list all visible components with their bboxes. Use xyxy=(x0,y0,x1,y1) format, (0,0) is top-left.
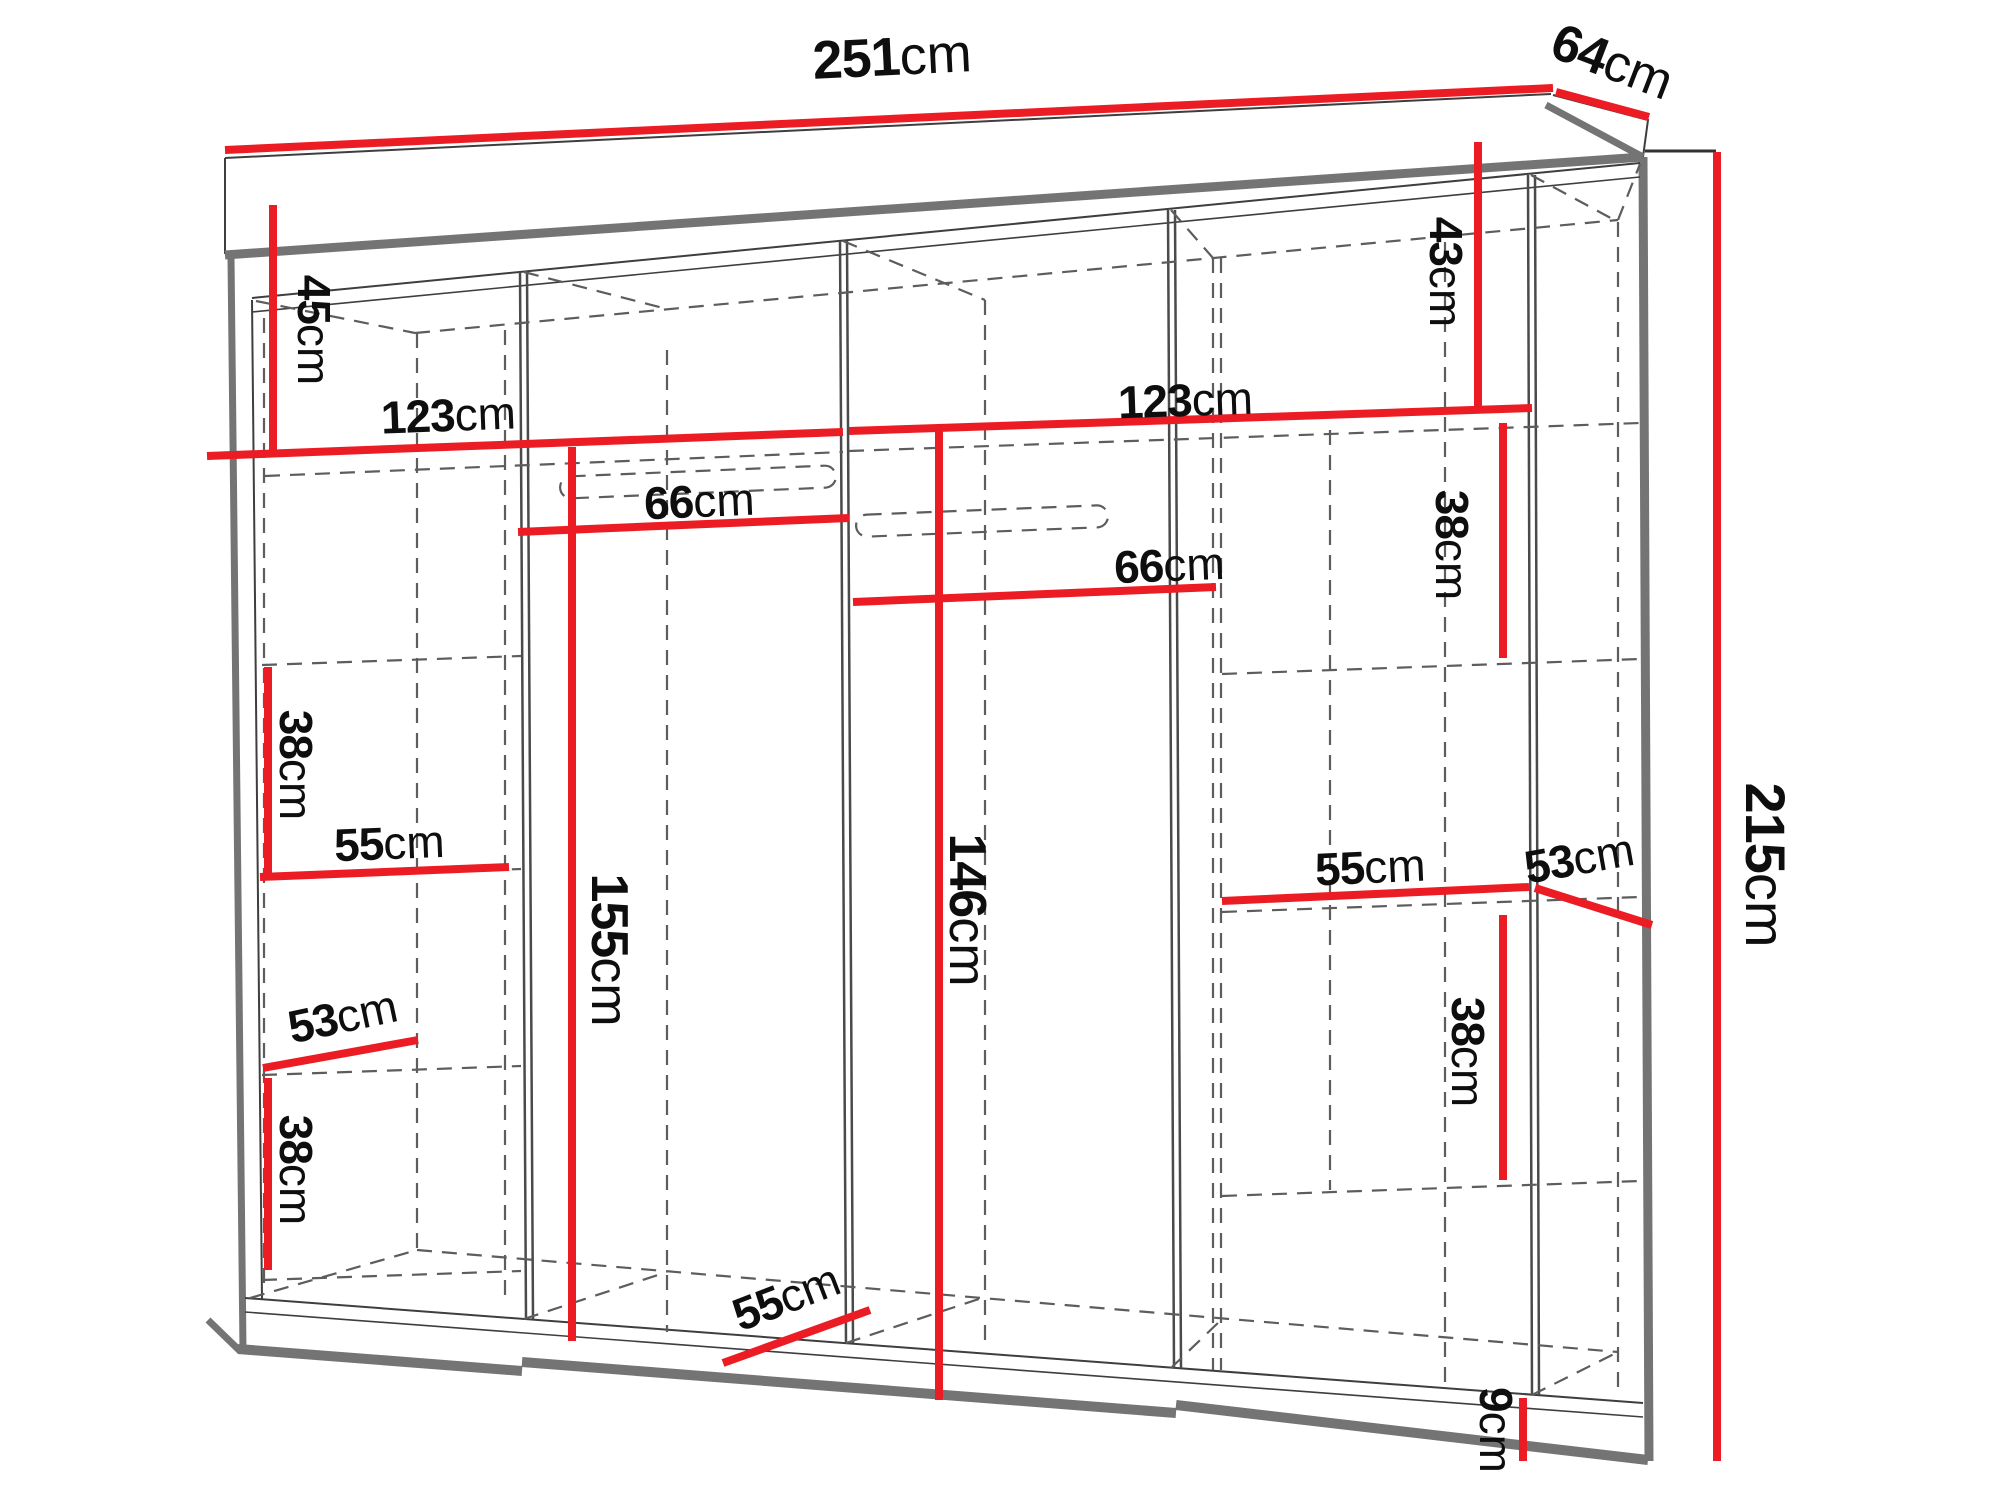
dimension-label-right-shelf-38-upper: 38cm xyxy=(1426,490,1478,601)
shelf-a4 xyxy=(262,1271,521,1280)
dimension-overall-width: 251cm xyxy=(225,23,1553,150)
floor-diag-left xyxy=(250,1250,417,1298)
top-diag-right xyxy=(1618,164,1640,220)
dimension-top-left-45: 45cm xyxy=(273,205,340,453)
floor-diag-p1 xyxy=(524,1272,667,1319)
dimension-label-right-rail-66: 66cm xyxy=(1113,537,1225,593)
dimension-right-depth-53: 53cm xyxy=(1520,823,1652,925)
dimension-line-overall-width xyxy=(225,88,1553,150)
dimension-right-width-123: 123cm xyxy=(849,372,1532,431)
right-side-panel-edge xyxy=(1643,157,1649,1461)
clothes-rail-right xyxy=(856,505,1109,537)
shelf-a3 xyxy=(262,1066,521,1075)
dimension-label-left-shelf-55: 55cm xyxy=(333,815,445,871)
dimension-label-right-shelf-38-lower: 38cm xyxy=(1442,997,1494,1108)
left-side-panel-edge xyxy=(231,258,243,1350)
dimension-label-plinth-9: 9cm xyxy=(1470,1387,1522,1473)
floor-diag-p4 xyxy=(1532,1352,1618,1395)
dimension-right-shelf-38-lower: 38cm xyxy=(1442,915,1503,1180)
dimension-line-right-depth-53 xyxy=(1535,888,1652,925)
dimension-label-top-left-45: 45cm xyxy=(288,275,340,386)
shelf-a1 xyxy=(262,656,521,665)
dimension-left-shelf-38-lower: 38cm xyxy=(268,1078,322,1270)
dimension-overall-depth: 64cm xyxy=(1543,13,1681,117)
dimension-mid-height-155: 155cm xyxy=(572,447,638,1341)
crown-top-edge xyxy=(225,94,1551,158)
hidden-depth-lines xyxy=(250,164,1640,1395)
dimension-left-depth-53: 53cm xyxy=(263,979,418,1068)
dimension-label-right-width-123: 123cm xyxy=(1117,372,1254,429)
dimension-left-shelf-38-upper: 38cm xyxy=(268,667,322,875)
shelf-c3 xyxy=(1222,1181,1640,1196)
dimension-label-mid-height-155: 155cm xyxy=(580,873,638,1026)
dimension-label-overall-height: 215cm xyxy=(1734,782,1797,947)
dimension-line-left-depth-53 xyxy=(263,1040,418,1068)
dimension-right-shelf-38-upper: 38cm xyxy=(1426,423,1503,658)
dimension-label-left-shelf-38-upper: 38cm xyxy=(270,710,322,821)
partition-2-center xyxy=(840,241,853,1343)
dimension-plinth-9: 9cm xyxy=(1470,1387,1523,1473)
dimension-label-right-shelf-55: 55cm xyxy=(1314,839,1427,896)
dimension-right-rail-66: 66cm xyxy=(853,537,1226,602)
dimension-label-left-shelf-38-lower: 38cm xyxy=(270,1115,322,1226)
dimension-label-overall-width: 251cm xyxy=(811,23,973,91)
dimension-label-mid-height-146: 146cm xyxy=(938,833,996,986)
interior-floor-line xyxy=(245,1298,1643,1403)
dimension-label-top-right-43: 43cm xyxy=(1420,217,1472,328)
dimension-right-shelf-55: 55cm xyxy=(1222,839,1529,901)
dimension-line-left-width-123 xyxy=(207,432,843,456)
floor-diag-p2 xyxy=(846,1297,985,1343)
shelf-c1 xyxy=(1222,659,1640,674)
dimension-mid-height-146: 146cm xyxy=(938,427,996,1400)
dimension-label-left-width-123: 123cm xyxy=(380,386,517,443)
partition-4 xyxy=(1528,175,1539,1395)
dimension-annotations: 251cm64cm215cm45cm43cm123cm123cm66cm66cm… xyxy=(207,13,1797,1473)
dimension-left-shelf-55: 55cm xyxy=(260,815,509,877)
floor-back-edge xyxy=(417,1250,1618,1352)
dimension-overall-height: 215cm xyxy=(1645,151,1797,1461)
top-diag-p3 xyxy=(1171,210,1213,258)
dimension-label-left-rail-66: 66cm xyxy=(643,473,756,530)
top-shelf-back-left xyxy=(265,452,843,476)
wardrobe-dimension-diagram: 251cm64cm215cm45cm43cm123cm123cm66cm66cm… xyxy=(0,0,2000,1500)
top-diag-p4 xyxy=(1531,175,1618,222)
top-diag-p1 xyxy=(524,272,667,309)
partition-1 xyxy=(520,272,533,1319)
dimension-left-rail-66: 66cm xyxy=(518,473,849,532)
dimension-left-width-123: 123cm xyxy=(207,386,843,456)
plinth-left-foot xyxy=(208,1320,240,1351)
dimension-bottom-depth-55: 55cm xyxy=(723,1253,870,1363)
